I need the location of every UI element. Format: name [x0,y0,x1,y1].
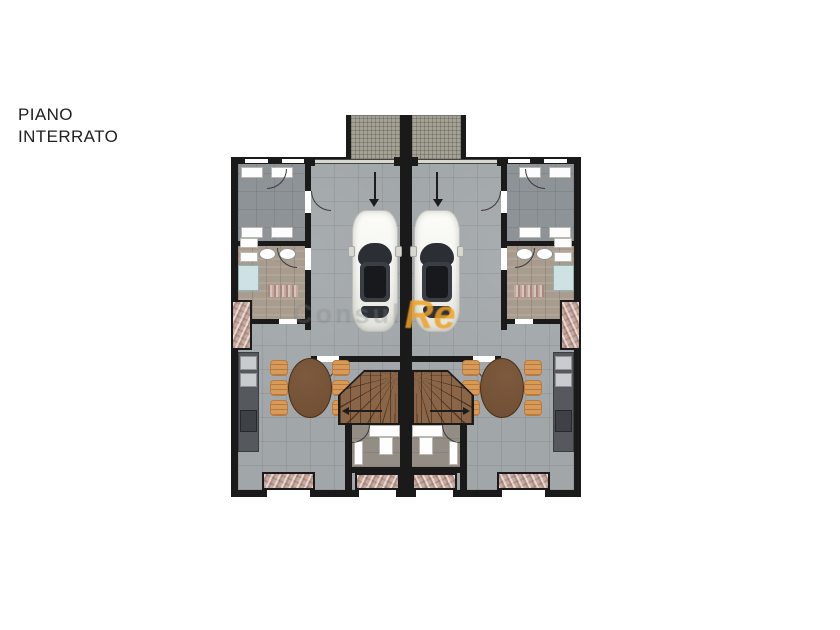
garage-door [311,159,400,164]
chair [270,400,288,416]
chair [270,360,288,376]
stairs-arrow-icon [348,410,382,412]
light-well [231,300,252,350]
light-well [412,473,457,490]
landing-wall [369,425,400,437]
appliance [240,356,257,370]
floor-plan: ConsulRe [231,115,581,497]
chair [332,360,350,376]
stairs-arrow-icon [430,410,464,412]
appliance [240,410,257,432]
light-well [262,472,315,490]
car-mirror [348,246,355,257]
car-mirror [410,246,417,257]
door-gap [515,319,533,324]
bottom-window [502,490,545,497]
door-gap [305,248,311,270]
door-leaf [354,441,363,465]
bottom-window [359,490,396,497]
entry-ramp [407,115,466,159]
stairs-arrow-head [342,407,349,415]
cellar-cabinet [549,227,571,238]
garage-wall [501,164,507,330]
chair [270,380,288,396]
radiator [554,238,572,248]
light-well [497,472,550,490]
title-line-2: INTERRATO [18,126,118,148]
shower-tray [553,265,574,291]
watermark-text: Consul [293,299,403,329]
vestibule-wall [460,423,467,490]
door-gap [501,191,507,213]
door-jamb [394,157,400,166]
dining-table [480,358,524,418]
watermark-logo: Re [405,293,456,337]
radiator [554,252,572,262]
landing-wall [412,425,443,437]
appliance [555,373,572,387]
window [282,159,304,164]
chair [524,380,542,396]
window [245,159,268,164]
entry-ramp [346,115,405,159]
page-title: PIANO INTERRATO [18,104,118,148]
appliance [555,410,572,432]
bottom-window [416,490,453,497]
chair [524,360,542,376]
sink-icon [259,248,276,260]
direction-arrow-icon [431,172,443,208]
cellar-cabinet [271,227,293,238]
cellar-cabinet [549,167,571,178]
landing-wall [379,437,393,455]
chair [524,400,542,416]
door-jamb [309,157,315,166]
car-mirror [395,246,402,257]
car-mirror [457,246,464,257]
cellar-cabinet [241,227,263,238]
title-line-1: PIANO [18,104,118,126]
stairs-arrow-head [463,407,470,415]
door-jamb [497,157,503,166]
door-gap [501,248,507,270]
shower-tray [238,265,259,291]
direction-arrow-icon [369,172,381,208]
radiator [240,252,258,262]
dining-table [288,358,332,418]
appliance [555,356,572,370]
window [508,159,530,164]
doormat [514,285,544,297]
light-well [560,300,581,350]
door-leaf [449,441,458,465]
cellar-cabinet [519,227,541,238]
garage-door [412,159,501,164]
chair [462,360,480,376]
bottom-window [267,490,310,497]
door-jamb [412,157,418,166]
vestibule-wall [345,423,352,490]
cellar-cabinet [241,167,263,178]
door-gap [305,191,311,213]
sink-icon [536,248,553,260]
landing-wall [419,437,433,455]
appliance [240,373,257,387]
watermark: ConsulRe [293,293,456,338]
radiator [240,238,258,248]
light-well [355,473,400,490]
window [544,159,567,164]
